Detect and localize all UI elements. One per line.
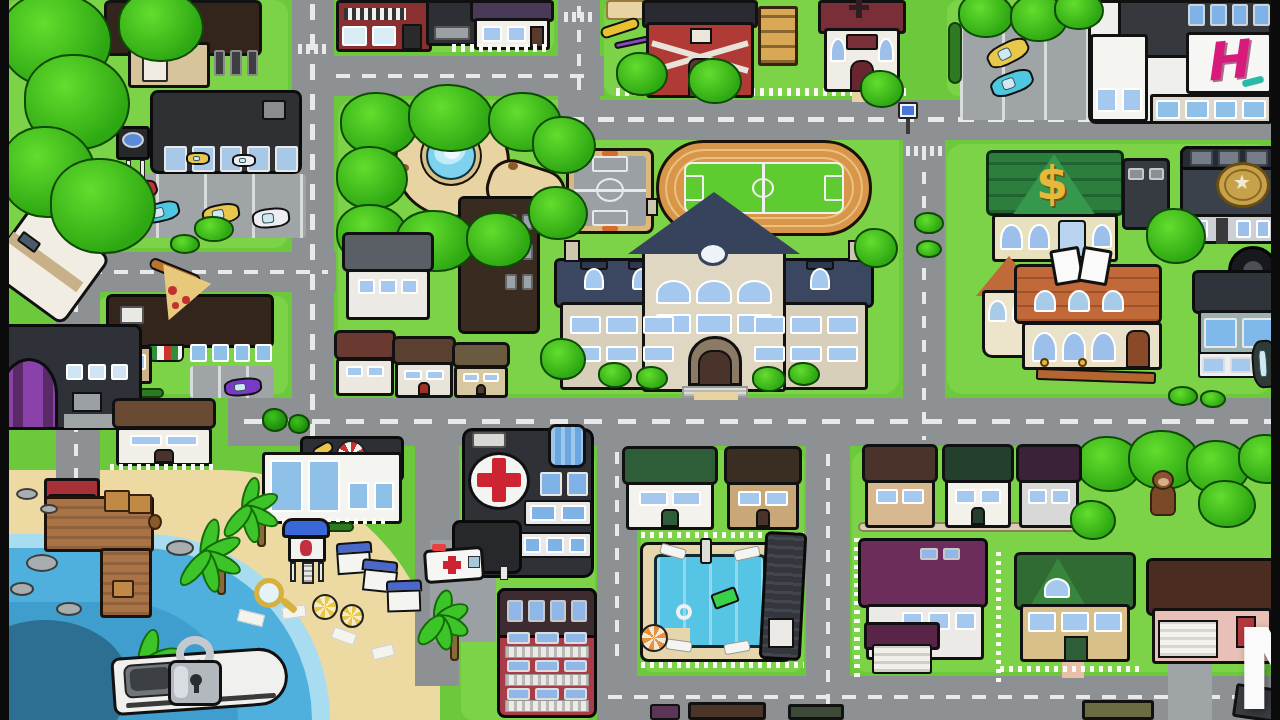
lane-dashes-top-left (336, 74, 596, 78)
school-wing-windows (754, 346, 858, 362)
church-window-right (878, 38, 894, 62)
rock (56, 602, 82, 616)
house-brown-body (395, 362, 454, 398)
house-dark-brown-body (727, 481, 799, 530)
school-dormer-window (810, 268, 830, 290)
police-badge-star: ★ (1233, 172, 1255, 200)
house-dark-green-roof (942, 444, 1014, 483)
lane-dashes-v3 (922, 148, 926, 440)
purple-house-roof-windows (920, 548, 960, 560)
hospital-windows-3 (524, 537, 586, 553)
house-brown[interactable] (392, 336, 456, 398)
school-door (698, 350, 732, 386)
lifeguard-leg (290, 562, 296, 582)
house-brown-door (418, 382, 430, 395)
apartment-windows-pane (507, 632, 530, 644)
gray-house-body (346, 269, 431, 320)
court-center-circle (596, 178, 624, 202)
beach-house-window-pane (166, 435, 198, 446)
house-maroon-roof (334, 330, 396, 360)
hotel-skylights-pane (1232, 4, 1249, 26)
bakery-windows-pane (372, 26, 397, 46)
canopy-post (500, 566, 508, 580)
tree (540, 338, 586, 380)
house-dark-green-door (971, 507, 984, 525)
house-green-roof-roof (622, 446, 718, 485)
pool-umbrella (640, 624, 668, 652)
beach-house-door (154, 449, 174, 463)
bakery-windows-pane (342, 26, 367, 46)
lifeguard-ladder (302, 562, 314, 584)
school-wing-windows-pane (827, 316, 858, 334)
hospital-windows-2 (530, 505, 586, 521)
apartment-windows (507, 660, 587, 672)
house-brown-small-windows (876, 489, 925, 504)
picket-fence (1000, 666, 1140, 672)
pool-fence-bottom (641, 662, 804, 668)
police-windows (1190, 150, 1268, 166)
apartment-windows (507, 688, 587, 700)
garage-roof (1192, 270, 1280, 314)
school-dormer-window-pane (810, 268, 830, 290)
library-lamp (1040, 358, 1049, 367)
school-wing-windows-pane (754, 316, 785, 334)
school-chimney-left (564, 240, 580, 262)
tree (1070, 500, 1116, 540)
cinema-door (72, 392, 102, 412)
pink-house-driveway (1168, 664, 1212, 720)
hotel-lower-windows-pane (1156, 100, 1180, 119)
hotel-lower-windows (1156, 100, 1266, 119)
bakery-checker-band (344, 8, 406, 20)
court-key-top (592, 156, 628, 172)
bush (636, 366, 668, 390)
school-wing-windows-pane (790, 316, 821, 334)
dock-crate (104, 490, 130, 512)
school-wing-windows-pane (606, 316, 637, 334)
bush (914, 212, 944, 234)
house-brown-small-roof (862, 444, 938, 483)
gray-house-window-pane (379, 279, 396, 294)
library-lamp (1078, 358, 1087, 367)
beach-shop-windows-2-pane (348, 482, 369, 510)
boat-cockpit (129, 667, 170, 692)
white-house-windows (482, 26, 526, 42)
showroom-car-yellow-windshield (193, 156, 200, 162)
dealership-roof-vent (262, 100, 286, 120)
palm-tree (186, 540, 256, 598)
hospital-windows-1-pane (567, 472, 589, 496)
beach-house[interactable] (112, 398, 216, 466)
dealership-glass-front-pane (164, 146, 187, 172)
hospital-cross-horizontal (477, 473, 521, 487)
crosswalk-3 (906, 146, 942, 156)
showroom-car-yellow (186, 152, 210, 165)
tree (50, 158, 156, 254)
pepperoni (182, 296, 190, 304)
lane-dashes-v4 (615, 452, 619, 668)
bush (170, 234, 200, 254)
library-windows-pane (1091, 332, 1116, 362)
hotel-tower-windows-pane (1122, 88, 1143, 112)
white-house-windows-pane (507, 26, 527, 42)
bush (194, 216, 234, 242)
bank-dollar-sign: $ (1036, 160, 1076, 210)
apartment-balcony (505, 700, 589, 712)
bush (598, 362, 632, 388)
tree (854, 228, 898, 268)
parked-car-cyan-2-windshield (1000, 76, 1017, 91)
hospital-windows-3-pane (546, 537, 563, 553)
bush (1168, 386, 1198, 406)
green-house-windows-pane (1028, 612, 1056, 632)
diving-board (700, 538, 712, 564)
playground-sandbox (606, 0, 646, 20)
police-lower-windows (1236, 220, 1270, 238)
police-lower-windows-pane (1236, 220, 1251, 238)
green-house-gable-window (1044, 578, 1070, 598)
apartment-windows (507, 632, 587, 644)
beach-house-roof (112, 398, 216, 429)
police-lower-windows-pane (1256, 220, 1271, 238)
grill-shack-window (434, 26, 470, 40)
house-maroon-window-pane (346, 366, 363, 377)
parked-taxi-2-windshield (996, 46, 1013, 62)
house-brown-windows (404, 370, 444, 380)
lane-dashes-main (244, 419, 1274, 424)
hotel-skylights (1188, 4, 1270, 26)
school-wing-windows-pane (606, 346, 637, 362)
house-dark-brown-door (756, 509, 770, 527)
beach-shop-windows-pane (308, 460, 341, 512)
beach-umbrella (340, 604, 364, 628)
house-purple-small-window-pane (1051, 489, 1070, 504)
parked-car-white-windshield (262, 213, 275, 224)
house-tan-windows (463, 373, 499, 382)
hospital-water-tank (548, 424, 586, 468)
gray-house[interactable] (342, 232, 434, 320)
lifeguard-leg (318, 562, 324, 582)
church-banner (846, 34, 878, 50)
dealership-glass-front-pane (275, 146, 298, 172)
rock (26, 554, 58, 572)
house-dark-brown-window-pane (765, 491, 788, 506)
gray-house-window-pane (358, 279, 375, 294)
brown-building-windows-pane (230, 50, 241, 76)
hotel-tower-windows (1096, 88, 1142, 112)
pizza-windows-pane (234, 344, 251, 362)
padlock-keyhole-stem (194, 684, 199, 693)
apartment-top-windows-pane (528, 600, 544, 622)
apartment-top-windows-pane (571, 600, 587, 622)
tree (688, 58, 742, 104)
pizza-roof-vent (120, 306, 144, 324)
bear-muzzle (1158, 478, 1169, 486)
apartment-windows-pane (535, 632, 558, 644)
school-clock (698, 242, 728, 266)
school-wing-windows (570, 316, 674, 334)
library-dormer (1034, 290, 1056, 312)
swim-ring (676, 604, 692, 620)
goal-box-right (824, 175, 844, 201)
apartment-windows-pane (507, 660, 530, 672)
house-brown-small-body (865, 479, 935, 528)
bank-annex-windows (1128, 168, 1164, 180)
library-door (1126, 330, 1150, 368)
tree (1198, 480, 1256, 528)
picket-fence (110, 464, 218, 470)
pink-house-garage-door (1158, 620, 1218, 658)
parked-car-purple-windshield (234, 382, 246, 392)
tree (336, 146, 408, 210)
apartment-windows-pane (564, 688, 587, 700)
beach-tent (387, 589, 422, 612)
partial-roof (650, 704, 680, 720)
house-dark-green-window-pane (955, 489, 976, 504)
house-green-roof-window-pane (639, 491, 668, 506)
library-dormer-pane (1102, 290, 1124, 312)
pepperoni (172, 302, 179, 309)
hospital-windows-1 (540, 472, 588, 496)
apartment-windows-pane (564, 660, 587, 672)
pizza-windows-pane (255, 344, 272, 362)
library-dormer (1068, 290, 1090, 312)
picket-fence-vertical (996, 552, 1001, 684)
library-turret-windows-pane (988, 300, 1007, 322)
green-house-windows-pane (1094, 612, 1122, 632)
house-maroon[interactable] (334, 330, 396, 396)
cinema-windows-pane (88, 364, 105, 380)
dealership-sign-logo (122, 132, 144, 148)
bush (262, 408, 288, 432)
school-dormer-window (584, 268, 604, 290)
hospital-windows-3-pane (569, 537, 586, 553)
house-green-roof-windows (639, 491, 702, 506)
hospital-windows-2-pane (561, 505, 587, 521)
gray-house-roof (342, 232, 434, 272)
house-green-roof-body (626, 481, 714, 530)
apartment-top-windows-pane (550, 600, 566, 622)
house-dark-brown-windows (738, 491, 788, 506)
hotel-lower-windows-pane (1185, 100, 1209, 119)
bakery-door (402, 24, 422, 50)
bush (788, 362, 820, 386)
green-house-windows (1028, 612, 1122, 632)
school-center-windows-1-pane (656, 280, 691, 304)
house-brown-roof (392, 336, 456, 365)
dock-crate (128, 494, 152, 514)
house-brown-window-pane (404, 370, 422, 380)
apartment-windows-pane (564, 632, 587, 644)
apartment-windows-pane (535, 688, 558, 700)
house-maroon-windows (346, 366, 385, 377)
palm-tree (424, 604, 482, 664)
house-dark-green[interactable] (942, 444, 1014, 528)
basketball-hoop-top (602, 151, 618, 156)
hay-crates (758, 6, 798, 66)
cinema-windows (66, 364, 128, 380)
house-brown-small-window-pane (902, 489, 924, 504)
green-house-windows-pane (1061, 612, 1089, 632)
pizza-windows-pane (212, 344, 229, 362)
school-wing-windows-pane (754, 346, 785, 362)
garage-lower-windows-pane (1230, 357, 1253, 373)
bank-annex-windows-pane (1128, 168, 1144, 180)
beach-house-window-pane (130, 435, 162, 446)
house-tan-body (454, 366, 507, 398)
rock (40, 504, 58, 514)
tree (528, 186, 588, 240)
gray-house-window-pane (401, 279, 418, 294)
apartment-top-windows (507, 600, 587, 622)
purple-garage-door (872, 644, 932, 674)
dark-building-windows-pane (522, 274, 534, 290)
cinema-windows-pane (111, 364, 128, 380)
lifeguard-canopy (282, 518, 330, 538)
padlock-highlight (174, 666, 188, 698)
bank-windows-2 (1092, 224, 1112, 248)
hotel-lower-windows-pane (1242, 100, 1266, 119)
house-tan-roof (452, 342, 510, 368)
hospital-roof-vent (472, 432, 506, 448)
garage-windows-pane (1204, 318, 1237, 348)
parked-car-dark-windshield (1258, 350, 1267, 378)
school-dormer-window-pane (584, 268, 604, 290)
school-center-windows-2-pane (696, 314, 731, 334)
tree (860, 70, 904, 108)
bus-stop-sign-inner (902, 106, 914, 115)
house-tan-window-pane (483, 373, 499, 382)
pepperoni (168, 286, 177, 295)
house-tan-window-pane (463, 373, 479, 382)
house-green-roof[interactable] (622, 446, 718, 530)
pizza-windows (190, 344, 272, 362)
hedge-hotel (948, 22, 962, 84)
house-maroon-window-pane (367, 366, 384, 377)
showroom-car-white-windshield (239, 158, 246, 164)
pizza-awning (148, 344, 184, 362)
hotel-lower-windows-pane (1214, 100, 1238, 119)
house-dark-green-window-pane (980, 489, 1001, 504)
picket-fence (452, 44, 548, 52)
tree (466, 212, 532, 268)
lane-dashes-west (88, 270, 328, 274)
hotel-skylights-pane (1188, 4, 1205, 26)
dark-building-windows-pane (505, 274, 517, 290)
beach-umbrella (312, 594, 338, 620)
garage-lower-windows-pane (1202, 357, 1225, 373)
partial-roof (1082, 700, 1154, 720)
bush (916, 240, 942, 258)
library-book-right-page (1077, 246, 1113, 287)
beach-shop-windows-2-pane (374, 482, 395, 510)
tree (1146, 208, 1206, 264)
green-house-gable-window-pane (1044, 578, 1070, 598)
hotel-skylights-pane (1210, 4, 1227, 26)
apartment-balcony (505, 674, 589, 686)
beach-house-body (116, 427, 212, 466)
lane-dashes-v5 (826, 454, 830, 712)
pizza-windows-pane (190, 344, 207, 362)
ambulance-light (432, 544, 446, 551)
school-wing-windows (754, 316, 858, 334)
crosswalk-2 (564, 12, 596, 22)
school-front-path (694, 392, 738, 400)
tree (532, 116, 596, 174)
house-maroon-body (336, 358, 393, 396)
town-map: H$★N (0, 0, 1280, 720)
house-brown-small[interactable] (862, 444, 938, 528)
school-tower-chimney (646, 198, 658, 216)
magnifier-item[interactable] (254, 578, 284, 608)
beach-house-windows (130, 435, 198, 446)
garage-lower-windows (1202, 357, 1252, 373)
house-brown-window-pane (426, 370, 444, 380)
barn-loft-door (690, 28, 712, 44)
house-dark-brown-roof (724, 446, 802, 485)
squirrel (508, 162, 518, 170)
hotel-tower-windows-pane (1096, 88, 1117, 112)
partial-roof (688, 702, 766, 720)
bush (752, 366, 786, 392)
hospital-windows-3-pane (524, 537, 541, 553)
bush (288, 414, 310, 434)
ambulance-cross-horizontal (443, 561, 461, 569)
crosswalk-1 (298, 44, 330, 54)
house-tan[interactable] (452, 342, 510, 398)
goal-box-left (684, 175, 704, 201)
house-dark-green-windows (955, 489, 1001, 504)
school-center-windows-1 (656, 280, 772, 304)
purple-house-roof-windows-pane (920, 548, 938, 560)
bank-windows (1000, 224, 1050, 250)
church-window-right-pane (878, 38, 894, 62)
cinema-windows-pane (66, 364, 83, 380)
green-house-door (1064, 636, 1088, 662)
basketball-hoop-bottom (602, 226, 618, 231)
court-key-bottom (592, 210, 628, 226)
house-dark-brown[interactable] (724, 446, 802, 530)
brown-building-windows-pane (214, 50, 225, 76)
police-windows-pane (1190, 150, 1213, 166)
house-brown-small-window-pane (876, 489, 898, 504)
house-purple-small-window-pane (1028, 489, 1047, 504)
school-wing-windows-pane (790, 346, 821, 362)
bank-windows-pane (1000, 224, 1023, 250)
library-dormer-pane (1034, 290, 1056, 312)
letterbox-right (1271, 0, 1280, 720)
police-door (1216, 218, 1228, 244)
beach-shop-windows-2 (348, 482, 394, 510)
letterbox-left (0, 0, 9, 720)
school-wing-windows-pane (570, 316, 601, 334)
school-wing-windows-pane (827, 346, 858, 362)
apartment-balcony (505, 646, 589, 658)
purple-house-roof-windows-pane (943, 548, 961, 560)
dock-crate (112, 580, 134, 598)
house-dark-brown-window-pane (738, 491, 761, 506)
house-green-roof-window-pane (672, 491, 701, 506)
church-cross-horizontal (849, 5, 869, 10)
rock (16, 488, 38, 500)
dealership-glass-front (164, 146, 298, 172)
hospital-windows-2-pane (530, 505, 556, 521)
tree (408, 84, 494, 152)
apartment-top-windows-pane (507, 600, 523, 622)
bank-windows-pane (1028, 224, 1051, 250)
tree (616, 52, 668, 96)
house-tan-door (476, 384, 486, 395)
